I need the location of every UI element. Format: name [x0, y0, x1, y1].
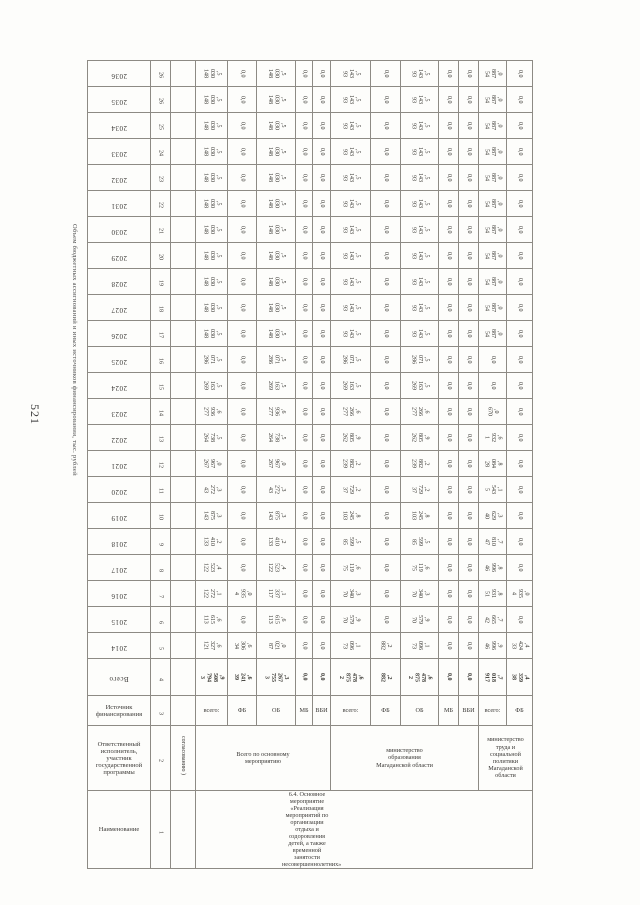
value-cell-3: 0,0 — [296, 191, 313, 217]
rotated-amount: 0,0 — [507, 278, 532, 286]
rotated-amount: 148030,5 — [257, 277, 295, 286]
column-number: 7 — [158, 595, 164, 598]
rotated-amount: 54887,0 — [479, 121, 506, 130]
continuation-empty-cell — [171, 113, 196, 139]
total-value-cell-11: 38359,4 — [507, 659, 533, 696]
year-row-2021: 202112267967,00,0267967,00,00,0239882,20… — [88, 451, 533, 477]
rotated-amount: 277266,6 — [331, 407, 370, 416]
year-label-cell: 2020 — [88, 477, 151, 503]
rotated-amount: 0,0 — [313, 590, 330, 598]
year-row-2031: 203122148030,50,0148030,50,00,093143,50,… — [88, 191, 533, 217]
rotated-amount: 148030,5 — [196, 147, 227, 156]
rotated-amount: 143875,3 — [257, 511, 295, 520]
value-cell-10: 51931,8 — [479, 581, 507, 607]
value-cell-10: 0,0 — [479, 347, 507, 373]
rotated-amount: 0,0 — [228, 304, 256, 312]
rotated-amount: 0,0 — [228, 486, 256, 494]
column-number: 24 — [158, 150, 164, 156]
value-cell-3: 0,0 — [296, 321, 313, 347]
value-cell-8: 0,0 — [439, 217, 459, 243]
value-cell-6: 0,0 — [371, 581, 401, 607]
value-cell-8: 0,0 — [439, 555, 459, 581]
rotated-amount: 0,0 — [313, 304, 330, 312]
rotated-amount: 0,0 — [313, 408, 330, 416]
year-label-cell: 2026 — [88, 321, 151, 347]
page-number: 521 — [27, 404, 42, 425]
value-cell-8: 0,0 — [439, 477, 459, 503]
rotated-amount: 0,0 — [507, 564, 532, 572]
value-cell-1: 0,0 — [228, 191, 257, 217]
value-cell-1: 0,0 — [228, 87, 257, 113]
continuation-empty-cell — [171, 633, 196, 659]
rotated-amount: 0,0 — [228, 148, 256, 156]
value-cell-9: 0,0 — [459, 347, 479, 373]
rotated-amount: 0,0 — [439, 486, 458, 494]
rotated-amount: 286071,5 — [401, 355, 438, 364]
value-cell-11: 0,0 — [507, 321, 533, 347]
year-label-cell: 2034 — [88, 113, 151, 139]
rotated-amount: 54887,0 — [479, 277, 506, 286]
continuation-empty-cell — [171, 243, 196, 269]
value-cell-3: 0,0 — [296, 451, 313, 477]
year-row-2025: 202516286071,50,0286071,50,00,0286071,50… — [88, 347, 533, 373]
value-cell-4: 0,0 — [313, 295, 331, 321]
rotated-amount: 0,0 — [371, 564, 400, 572]
rotated-amount: 0,0 — [296, 278, 312, 286]
year-label: 2022 — [111, 436, 127, 444]
year-row-2022: 202213264738,50,0264738,50,00,0262805,90… — [88, 425, 533, 451]
value-cell-4: 0,0 — [313, 61, 331, 87]
rotated-amount: 0,0 — [296, 616, 312, 624]
value-cell-6: 0,0 — [371, 165, 401, 191]
value-cell-4: 0,0 — [313, 451, 331, 477]
value-cell-11: 0,0 — [507, 347, 533, 373]
rotated-amount: 148030,5 — [257, 121, 295, 130]
rotated-amount: 46996,8 — [479, 563, 506, 572]
rotated-amount: 93143,5 — [401, 225, 438, 234]
column-number-cell: 12 — [151, 451, 171, 477]
value-cell-0: 113615,6 — [196, 607, 228, 633]
value-cell-10: 54887,0 — [479, 191, 507, 217]
total-value-cell-6: 882,2 — [371, 659, 401, 696]
year-label-cell: 2019 — [88, 503, 151, 529]
value-cell-4: 0,0 — [313, 529, 331, 555]
value-cell-8: 0,0 — [439, 191, 459, 217]
rotated-amount: 0,0 — [371, 200, 400, 208]
value-cell-8: 0,0 — [439, 269, 459, 295]
rotated-amount: 0,0 — [296, 122, 312, 130]
funding-source-cell-11: ФБ — [507, 696, 533, 726]
value-cell-6: 0,0 — [371, 529, 401, 555]
value-cell-7: 269163,5 — [401, 373, 439, 399]
value-cell-4: 0,0 — [313, 373, 331, 399]
rotated-amount: 0,0 — [296, 538, 312, 546]
value-cell-5: 93143,5 — [331, 61, 371, 87]
column-number: 26 — [158, 98, 164, 104]
column-number-cell: 8 — [151, 555, 171, 581]
value-cell-9: 0,0 — [459, 607, 479, 633]
rotated-amount: 93143,5 — [401, 69, 438, 78]
rotated-amount: 0,0 — [507, 408, 532, 416]
value-cell-11: 0,0 — [507, 113, 533, 139]
value-cell-5: 70579,9 — [331, 607, 371, 633]
year-label-cell: 2021 — [88, 451, 151, 477]
value-cell-4: 0,0 — [313, 217, 331, 243]
executor-group-cell-0: Всего по основному мероприятию — [196, 726, 331, 791]
rotated-amount: 54887,0 — [479, 173, 506, 182]
rotated-amount: 0,0 — [296, 70, 312, 78]
rotated-amount: 0,0 — [313, 70, 330, 78]
value-cell-5: 37729,2 — [331, 477, 371, 503]
column-number-cell: 19 — [151, 269, 171, 295]
value-cell-7: 93143,5 — [401, 165, 439, 191]
column-number: 9 — [158, 543, 164, 546]
value-cell-3: 0,0 — [296, 607, 313, 633]
value-cell-8: 0,0 — [439, 61, 459, 87]
value-cell-2: 43272,3 — [257, 477, 296, 503]
value-cell-6: 0,0 — [371, 217, 401, 243]
rotated-amount: 0,0 — [228, 538, 256, 546]
column-number: 26 — [158, 72, 164, 78]
continuation-empty-cell — [171, 451, 196, 477]
value-cell-0: 143875,3 — [196, 503, 228, 529]
total-value-cell-3: 0,0 — [296, 659, 313, 696]
value-cell-8: 0,0 — [439, 295, 459, 321]
rotated-amount: 262805,9 — [401, 433, 438, 442]
rotated-amount: 0,0 — [507, 304, 532, 312]
year-row-2034: 203425148030,50,0148030,50,00,093143,50,… — [88, 113, 533, 139]
executor-header-cell: Ответственный исполнитель, участник госу… — [88, 726, 151, 791]
rotated-amount: 0,0 — [507, 96, 532, 104]
column-number-cell: 26 — [151, 61, 171, 87]
column-number-cell: 20 — [151, 243, 171, 269]
column-number-cell: 22 — [151, 191, 171, 217]
rotated-amount: 93143,5 — [331, 121, 370, 130]
value-cell-6: 0,0 — [371, 295, 401, 321]
rotated-amount: 0,0 — [459, 200, 478, 208]
year-row-2029: 202920148030,50,0148030,50,00,093143,50,… — [88, 243, 533, 269]
funding-source-cell-9: ВБИ — [459, 696, 479, 726]
rotated-amount: 0,0 — [459, 122, 478, 130]
value-cell-1: 0,0 — [228, 425, 257, 451]
value-cell-10: 1932,6 — [479, 425, 507, 451]
rotated-amount: 0,0 — [296, 408, 312, 416]
value-cell-1: 0,0 — [228, 321, 257, 347]
year-label: 2035 — [111, 98, 127, 106]
value-cell-10: 47810,7 — [479, 529, 507, 555]
rotated-amount: 93143,5 — [331, 225, 370, 234]
year-label: 2031 — [111, 202, 127, 210]
value-cell-11: 0,0 — [507, 607, 533, 633]
value-cell-1: 0,0 — [228, 165, 257, 191]
rotated-amount: 0,0 — [371, 304, 400, 312]
rotated-amount: 0,0 — [459, 460, 478, 468]
value-cell-2: 269163,5 — [257, 373, 296, 399]
value-cell-10: 54887,0 — [479, 295, 507, 321]
year-label-cell: 2023 — [88, 399, 151, 425]
rotated-amount: 148030,5 — [196, 69, 227, 78]
value-cell-9: 0,0 — [459, 425, 479, 451]
rotated-amount: 0,0 — [507, 616, 532, 624]
continuation-empty-cell — [171, 555, 196, 581]
year-label-cell: 2014 — [88, 633, 151, 659]
value-cell-9: 0,0 — [459, 633, 479, 659]
rotated-amount: 0,0 — [313, 616, 330, 624]
rotated-amount: 0,0 — [459, 252, 478, 260]
column-number-cell: 4 — [151, 659, 171, 696]
value-cell-3: 0,0 — [296, 113, 313, 139]
rotated-amount: 0,0 — [296, 673, 312, 681]
value-cell-5: 93143,5 — [331, 295, 371, 321]
year-row-2026: 202617148030,50,0148030,50,00,093143,50,… — [88, 321, 533, 347]
value-cell-8: 0,0 — [439, 243, 459, 269]
rotated-amount: 148030,5 — [257, 69, 295, 78]
year-label-cell: 2017 — [88, 555, 151, 581]
value-cell-7: 93143,5 — [401, 139, 439, 165]
column-number-cell: 23 — [151, 165, 171, 191]
value-cell-8: 0,0 — [439, 139, 459, 165]
rotated-amount: 0,0 — [507, 512, 532, 520]
rotated-amount: 70340,3 — [331, 589, 370, 598]
year-label: 2036 — [111, 72, 127, 80]
continuation-empty-cell — [171, 269, 196, 295]
value-cell-9: 0,0 — [459, 399, 479, 425]
rotated-amount: 882,2 — [371, 673, 400, 682]
year-label-cell: 2028 — [88, 269, 151, 295]
value-cell-2: 122523,4 — [257, 555, 296, 581]
rotated-amount: 0,0 — [313, 96, 330, 104]
rotated-amount: 0,0 — [459, 408, 478, 416]
year-label: 2025 — [111, 358, 127, 366]
funding-source-cell-6: ФБ — [371, 696, 401, 726]
executor-name: Всего по основному мероприятию — [227, 751, 299, 765]
rotated-amount: 0,0 — [439, 122, 458, 130]
value-cell-1: 34306,6 — [228, 633, 257, 659]
rotated-amount: 0,0 — [439, 96, 458, 104]
rotated-amount: 34306,6 — [228, 641, 256, 650]
rotated-amount: 54887,0 — [479, 303, 506, 312]
rotated-amount: 0,0 — [371, 330, 400, 338]
value-cell-1: 0,0 — [228, 61, 257, 87]
value-cell-1: 0,0 — [228, 529, 257, 555]
value-cell-6: 0,0 — [371, 373, 401, 399]
value-cell-7: 93143,5 — [401, 191, 439, 217]
value-cell-0: 148030,5 — [196, 217, 228, 243]
rotated-amount: 0,0 — [313, 278, 330, 286]
column-number: 11 — [158, 488, 164, 494]
value-cell-6: 0,0 — [371, 139, 401, 165]
column-number: 3 — [158, 712, 164, 715]
value-cell-9: 0,0 — [459, 373, 479, 399]
value-cell-7: 93143,5 — [401, 87, 439, 113]
rotated-amount: 0,0 — [313, 673, 330, 681]
value-cell-5: 93143,5 — [331, 139, 371, 165]
rotated-amount: 0,0 — [439, 590, 458, 598]
value-cell-5: 239882,2 — [331, 451, 371, 477]
budget-table-body: 203626148030,50,0148030,50,00,093143,50,… — [88, 61, 533, 869]
funding-source-cell-2: ОБ — [257, 696, 296, 726]
rotated-amount: 0,0 — [507, 434, 532, 442]
rotated-amount: 0,0 — [459, 673, 478, 681]
value-cell-11: 0,0 — [507, 399, 533, 425]
value-cell-7: 93143,5 — [401, 61, 439, 87]
value-cell-2: 143875,3 — [257, 503, 296, 529]
value-cell-0: 148030,5 — [196, 321, 228, 347]
value-cell-4: 0,0 — [313, 139, 331, 165]
rotated-amount: 93143,5 — [401, 199, 438, 208]
year-row-2028: 202819148030,50,0148030,50,00,093143,50,… — [88, 269, 533, 295]
value-cell-5: 277266,6 — [331, 399, 371, 425]
rotated-amount: 54887,0 — [479, 69, 506, 78]
value-cell-0: 277936,6 — [196, 399, 228, 425]
year-row-2024: 202415269163,50,0269163,50,00,0269163,50… — [88, 373, 533, 399]
value-cell-3: 0,0 — [296, 165, 313, 191]
rotated-amount: 148030,5 — [196, 121, 227, 130]
rotated-amount: 93143,5 — [401, 121, 438, 130]
column-number: 8 — [158, 569, 164, 572]
value-cell-2: 148030,5 — [257, 269, 296, 295]
value-cell-9: 0,0 — [459, 217, 479, 243]
value-cell-7: 93143,5 — [401, 321, 439, 347]
value-cell-6: 0,0 — [371, 607, 401, 633]
continuation-empty-cell — [171, 347, 196, 373]
rotated-amount: 0,0 — [228, 174, 256, 182]
year-row-2035: 203526148030,50,0148030,50,00,093143,50,… — [88, 87, 533, 113]
value-cell-2: 267967,0 — [257, 451, 296, 477]
funding-source-cell-7: ОБ — [401, 696, 439, 726]
year-label-cell: 2022 — [88, 425, 151, 451]
rotated-amount: 122523,4 — [196, 563, 227, 572]
value-cell-5: 70340,3 — [331, 581, 371, 607]
column-number: 12 — [158, 462, 164, 468]
rotated-amount: 0,0 — [313, 330, 330, 338]
column-number-cell: 24 — [151, 139, 171, 165]
rotated-amount: 286071,5 — [196, 355, 227, 364]
value-cell-7: 277266,6 — [401, 399, 439, 425]
value-cell-2: 117337,1 — [257, 581, 296, 607]
rotated-amount: 0,0 — [439, 304, 458, 312]
column-number: 18 — [158, 306, 164, 312]
continuation-empty-cell — [171, 477, 196, 503]
rotated-amount: 122523,4 — [257, 563, 295, 572]
year-label: 2016 — [111, 592, 127, 600]
value-cell-2: 133410,2 — [257, 529, 296, 555]
rotated-amount: 0,0 — [459, 538, 478, 546]
rotated-amount: 1932,6 — [479, 433, 506, 442]
rotated-amount: 0,0 — [371, 434, 400, 442]
rotated-amount: 0,0 — [439, 278, 458, 286]
rotated-amount: 0,0 — [228, 434, 256, 442]
rotated-amount: 670,0 — [479, 407, 506, 416]
rotated-amount: 0,0 — [296, 226, 312, 234]
rotated-amount: 239882,2 — [331, 459, 370, 468]
column-number: 17 — [158, 332, 164, 338]
table-side-title: Объем бюджетных ассигнований и иных исто… — [71, 224, 78, 524]
rotated-amount: 43272,3 — [257, 485, 295, 494]
value-cell-0: 148030,5 — [196, 61, 228, 87]
rotated-amount: 93143,5 — [331, 251, 370, 260]
rotated-amount: 37729,2 — [331, 485, 370, 494]
year-row-2020: 20201143272,30,043272,30,00,037729,20,03… — [88, 477, 533, 503]
continuation-empty-cell — [171, 696, 196, 726]
value-cell-7: 103245,8 — [401, 503, 439, 529]
rotated-amount: 0,0 — [439, 148, 458, 156]
rotated-amount: 2875478,6 — [401, 673, 438, 682]
rotated-amount: 0,0 — [296, 200, 312, 208]
rotated-amount: 0,0 — [439, 538, 458, 546]
rotated-amount: 0,0 — [507, 382, 532, 390]
value-cell-7: 286071,5 — [401, 347, 439, 373]
year-label: 2023 — [111, 410, 127, 418]
rotated-amount: 42665,7 — [479, 615, 506, 624]
column-number: 2 — [158, 759, 164, 762]
value-cell-2: 148030,5 — [257, 243, 296, 269]
rotated-amount: 148030,5 — [257, 95, 295, 104]
executor-group-cell-1: министерство образования Магаданской обл… — [331, 726, 479, 791]
year-label: 2028 — [111, 280, 127, 288]
rotated-amount: 148030,5 — [257, 251, 295, 260]
value-cell-6: 882,2 — [371, 633, 401, 659]
value-cell-9: 0,0 — [459, 87, 479, 113]
year-row-2023: 202314277936,60,0277936,60,00,0277266,60… — [88, 399, 533, 425]
rotated-amount: 0,0 — [439, 174, 458, 182]
rotated-amount: 0,0 — [439, 673, 458, 681]
rotated-amount: 0,0 — [439, 252, 458, 260]
rotated-amount: 0,0 — [313, 382, 330, 390]
value-cell-0: 148030,5 — [196, 269, 228, 295]
value-cell-8: 0,0 — [439, 503, 459, 529]
value-cell-7: 93143,5 — [401, 113, 439, 139]
column-number: 1 — [158, 831, 164, 834]
total-value-cell-4: 0,0 — [313, 659, 331, 696]
rotated-amount: 277266,6 — [401, 407, 438, 416]
rotated-amount: 5543,1 — [479, 485, 506, 494]
value-cell-3: 0,0 — [296, 269, 313, 295]
rotated-amount: 262805,9 — [331, 433, 370, 442]
year-label-cell: 2031 — [88, 191, 151, 217]
value-cell-1: 4935,0 — [228, 581, 257, 607]
rotated-amount: 2875478,6 — [331, 673, 370, 682]
value-cell-7: 70340,3 — [401, 581, 439, 607]
value-cell-6: 0,0 — [371, 113, 401, 139]
column-number: 16 — [158, 358, 164, 364]
value-cell-11: 0,0 — [507, 269, 533, 295]
value-cell-2: 148030,5 — [257, 87, 296, 113]
continuation-empty-cell — [171, 529, 196, 555]
rotated-amount: 4935,0 — [228, 589, 256, 598]
value-cell-1: 0,0 — [228, 399, 257, 425]
rotated-amount: 0,0 — [228, 382, 256, 390]
rotated-amount: 93143,5 — [401, 251, 438, 260]
rotated-amount: 0,0 — [439, 200, 458, 208]
value-cell-8: 0,0 — [439, 87, 459, 113]
value-cell-4: 0,0 — [313, 113, 331, 139]
value-cell-4: 0,0 — [313, 633, 331, 659]
value-cell-4: 0,0 — [313, 321, 331, 347]
value-cell-1: 0,0 — [228, 347, 257, 373]
year-label: 2018 — [111, 540, 127, 548]
year-row-2019: 201910143875,30,0143875,30,00,0103245,80… — [88, 503, 533, 529]
value-cell-2: 148030,5 — [257, 217, 296, 243]
value-cell-11: 0,0 — [507, 243, 533, 269]
column-number-cell: 21 — [151, 217, 171, 243]
value-cell-4: 0,0 — [313, 503, 331, 529]
measure-name: 6.4. Основное мероприятие «Реализация ме… — [282, 791, 332, 868]
continuation-empty-cell — [171, 581, 196, 607]
rotated-amount: 0,0 — [439, 564, 458, 572]
year-label: 2017 — [111, 566, 127, 574]
value-cell-11: 0,0 — [507, 477, 533, 503]
